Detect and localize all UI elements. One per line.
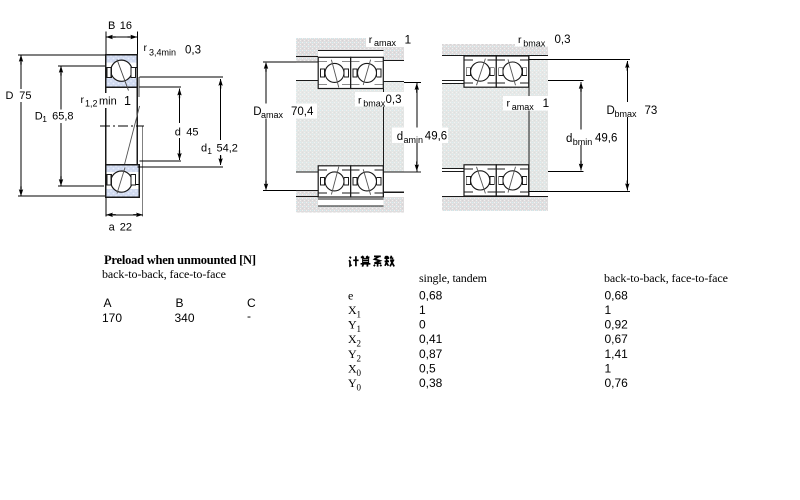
svg-text:amax: amax (374, 38, 397, 48)
svg-text:r: r (358, 95, 362, 107)
svg-text:0,5: 0,5 (419, 362, 436, 376)
svg-text:B: B (108, 20, 115, 32)
svg-text:1: 1 (543, 96, 550, 110)
svg-text:49,6: 49,6 (425, 131, 447, 143)
svg-text:1,41: 1,41 (605, 347, 629, 361)
svg-text:r: r (507, 98, 511, 110)
svg-text:0,3: 0,3 (555, 34, 571, 46)
svg-text:d: d (201, 143, 207, 155)
svg-text:1: 1 (207, 146, 212, 156)
svg-text:1: 1 (605, 303, 612, 317)
svg-text:0: 0 (357, 383, 362, 393)
svg-text:e: e (348, 288, 353, 302)
svg-text:r: r (144, 42, 148, 54)
svg-text:340: 340 (175, 311, 195, 325)
svg-text:65,8: 65,8 (52, 110, 73, 122)
svg-text:amax: amax (261, 110, 284, 120)
svg-text:1: 1 (419, 303, 426, 317)
svg-text:3,4min: 3,4min (149, 47, 176, 57)
svg-text:1: 1 (405, 32, 412, 46)
svg-text:D: D (6, 90, 14, 102)
svg-text:2: 2 (357, 339, 362, 349)
svg-text:a: a (109, 222, 116, 234)
svg-text:r: r (518, 34, 522, 46)
svg-text:r: r (369, 34, 373, 46)
svg-text:0,3: 0,3 (185, 44, 201, 56)
svg-text:bmax: bmax (523, 38, 546, 48)
svg-text:54,2: 54,2 (217, 143, 238, 155)
svg-text:1: 1 (42, 114, 47, 124)
svg-text:0,3: 0,3 (386, 94, 402, 106)
svg-text:0: 0 (357, 368, 362, 378)
svg-text:1,2: 1,2 (85, 99, 98, 109)
svg-text:70,4: 70,4 (291, 106, 314, 118)
svg-text:0,68: 0,68 (605, 288, 629, 302)
svg-text:Preload when unmounted [N]: Preload when unmounted [N] (104, 253, 256, 267)
svg-text:back-to-back, face-to-face: back-to-back, face-to-face (102, 267, 226, 281)
svg-text:0,87: 0,87 (419, 347, 443, 361)
svg-text:amin: amin (404, 135, 424, 145)
svg-text:r: r (81, 94, 85, 106)
svg-text:22: 22 (120, 222, 132, 234)
svg-text:bmax: bmax (615, 109, 638, 119)
svg-text:73: 73 (645, 105, 658, 117)
svg-text:d: d (175, 126, 181, 138)
svg-text:0,92: 0,92 (605, 318, 629, 332)
svg-text:1: 1 (357, 324, 362, 334)
svg-text:-: - (247, 309, 251, 323)
svg-text:0,67: 0,67 (605, 332, 629, 346)
svg-text:d: d (566, 133, 572, 145)
svg-text:1: 1 (357, 310, 362, 320)
svg-text:bmax: bmax (363, 99, 386, 109)
svg-text:0,68: 0,68 (419, 288, 443, 302)
svg-text:16: 16 (120, 20, 132, 32)
svg-text:1: 1 (124, 94, 131, 108)
svg-text:75: 75 (19, 90, 31, 102)
svg-text:49,6: 49,6 (595, 133, 617, 145)
svg-text:amax: amax (512, 102, 535, 112)
svg-text:bmin: bmin (573, 137, 593, 147)
svg-text:0: 0 (419, 318, 426, 332)
svg-text:single, tandem: single, tandem (419, 271, 488, 285)
svg-text:45: 45 (186, 126, 198, 138)
svg-text:A: A (104, 296, 112, 310)
svg-text:min: min (99, 96, 117, 108)
svg-text:back-to-back, face-to-face: back-to-back, face-to-face (604, 271, 728, 285)
svg-text:1: 1 (605, 362, 612, 376)
svg-text:d: d (397, 131, 403, 143)
svg-text:C: C (247, 296, 256, 310)
svg-text:0,41: 0,41 (419, 332, 443, 346)
svg-text:0,38: 0,38 (419, 376, 443, 390)
svg-text:170: 170 (102, 311, 122, 325)
svg-text:0,76: 0,76 (605, 376, 629, 390)
svg-text:2: 2 (357, 353, 362, 363)
svg-text:B: B (176, 296, 184, 310)
